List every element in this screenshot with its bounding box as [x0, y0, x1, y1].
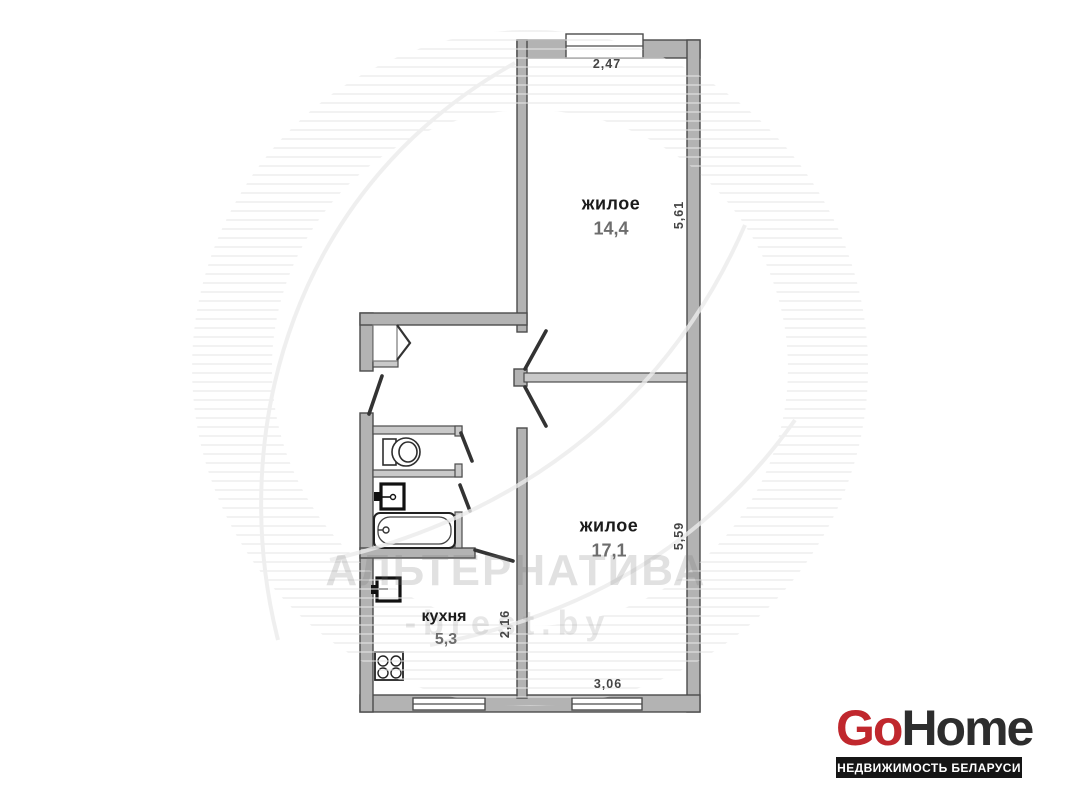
watermark-agency-name: АЛЬТЕРНАТИВА [325, 546, 706, 596]
room-living1-area: 14,4 [593, 219, 628, 240]
logo-tagline-bar: НЕДВИЖИМОСТЬ БЕЛАРУСИ [836, 757, 1022, 778]
dimension-living2-width: 3,06 [594, 677, 622, 691]
room-kitchen-label: кухня [422, 608, 467, 626]
room-living2-area: 17,1 [591, 541, 626, 562]
logo-go-text: Go [836, 700, 901, 756]
dimension-kitchen-depth: 2,16 [498, 610, 512, 638]
floor-plan-page: АЛЬТЕРНАТИВА -brest.by жилое 14,4 жилое … [0, 0, 1068, 800]
logo-tagline-text: НЕДВИЖИМОСТЬ БЕЛАРУСИ [837, 761, 1021, 775]
gohome-logo: GoHome НЕДВИЖИМОСТЬ БЕЛАРУСИ [836, 700, 1022, 778]
agency-watermark-graphic [0, 0, 1068, 800]
dimension-living2-depth: 5,59 [672, 522, 686, 550]
gohome-wordmark: GoHome [836, 700, 1022, 756]
room-kitchen-area: 5,3 [435, 631, 457, 649]
room-living2-label: жилое [580, 516, 639, 537]
logo-home-text: Home [901, 700, 1032, 756]
room-living1-label: жилое [582, 194, 641, 215]
dimension-living1-depth: 5,61 [672, 201, 686, 229]
dimension-living1-width: 2,47 [593, 57, 621, 71]
